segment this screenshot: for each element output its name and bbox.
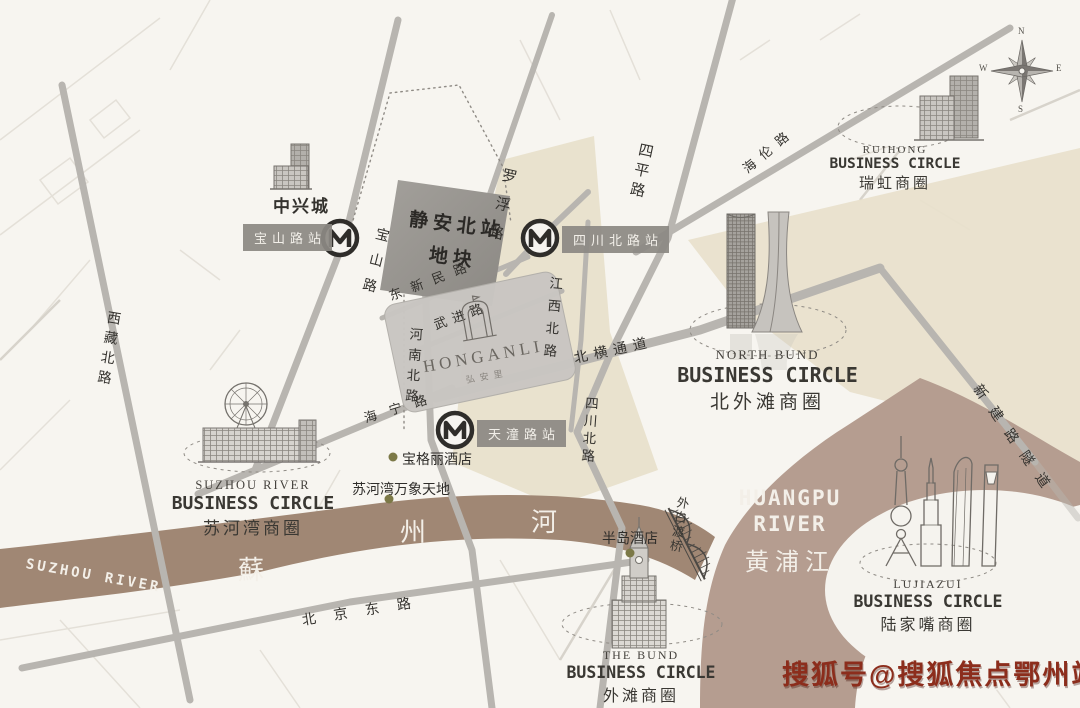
- suzhou-river: [0, 495, 715, 608]
- suzhou-river-char-su: 蘇: [238, 550, 264, 587]
- station-label-sichuan: 四川北路站: [562, 226, 669, 253]
- compass-n-label: N: [1018, 26, 1025, 36]
- north-bund-en: NORTH BUND: [670, 347, 865, 363]
- compass-e-label: E: [1056, 63, 1062, 73]
- watermark-text: 搜狐号@搜狐焦点鄂州站: [782, 653, 1080, 692]
- station-label-tiantong: 天潼路站: [477, 420, 566, 447]
- business-circle-the-bund: THE BUND BUSINESS CIRCLE 外滩商圈: [556, 648, 726, 706]
- poi-label-bulgari-hotel: 宝格丽酒店: [402, 449, 472, 469]
- poi-label-peninsula-hotel: 半岛酒店: [602, 528, 658, 548]
- ruihong-type: BUSINESS CIRCLE: [816, 156, 974, 172]
- metro-logo-sichuan-station: [523, 221, 557, 255]
- bulgari-hotel-dot: [389, 453, 398, 462]
- north-bund-type: BUSINESS CIRCLE: [670, 363, 865, 387]
- suzhou-river-bc-en: SUZHOU RIVER: [168, 478, 338, 493]
- lujiazui-en: LUJIAZUI: [843, 577, 1013, 592]
- honganli-arch-icon: [453, 291, 500, 343]
- the-bund-type: BUSINESS CIRCLE: [556, 663, 726, 682]
- huangpu-river-label: HUANGPU RIVER 黃浦江: [714, 486, 866, 577]
- huangpu-en-line2: RIVER: [714, 512, 866, 536]
- ruihong-building-icon: [914, 76, 984, 140]
- north-bund-cn: 北外滩商圈: [670, 387, 865, 414]
- suzhou-river-bc-cn: 苏河湾商圈: [168, 514, 338, 539]
- station-label-baoshan: 宝山路站: [243, 224, 332, 251]
- lujiazui-type: BUSINESS CIRCLE: [843, 592, 1013, 611]
- poi-label-suhewan-mixc: 苏河湾万象天地: [352, 479, 450, 499]
- ruihong-cn: 瑞虹商圈: [816, 172, 974, 193]
- poi-label-zhongxingcheng: 中兴城: [273, 192, 330, 217]
- zhongxingcheng-building-icon: [270, 144, 312, 189]
- suzhou-river-char-he: 河: [531, 502, 557, 539]
- location-map: 静安北站 地块 HONGANLI 弘安里 宝山路站 四川北路站 天潼路站 宝山路…: [0, 0, 1080, 708]
- business-circle-lujiazui: LUJIAZUI BUSINESS CIRCLE 陆家嘴商圈: [843, 577, 1013, 635]
- peninsula-hotel-dot: [626, 549, 635, 558]
- compass-w-label: W: [979, 63, 988, 73]
- business-circle-suzhou-river: SUZHOU RIVER BUSINESS CIRCLE 苏河湾商圈: [168, 478, 338, 539]
- suzhou-river-bc-type: BUSINESS CIRCLE: [168, 493, 338, 514]
- business-circle-north-bund: NORTH BUND BUSINESS CIRCLE 北外滩商圈: [670, 347, 865, 414]
- ruihong-en: RUIHONG: [816, 144, 974, 156]
- road-xizang-north: [62, 85, 190, 700]
- huangpu-en-line1: HUANGPU: [714, 486, 866, 510]
- huangpu-cn-label: 黃浦江: [714, 542, 866, 577]
- metro-logo-tiantong-station: [438, 413, 472, 447]
- the-bund-en: THE BUND: [556, 648, 726, 663]
- lujiazui-cn: 陆家嘴商圈: [843, 611, 1013, 635]
- compass-s-label: S: [1018, 104, 1023, 114]
- suzhou-river-char-zhou: 州: [400, 512, 426, 549]
- business-circle-ruihong: RUIHONG BUSINESS CIRCLE 瑞虹商圈: [816, 144, 974, 193]
- suzhou-river-landmark-icon: [198, 383, 320, 462]
- compass-rose-icon: [991, 40, 1053, 102]
- the-bund-cn: 外滩商圈: [556, 682, 726, 706]
